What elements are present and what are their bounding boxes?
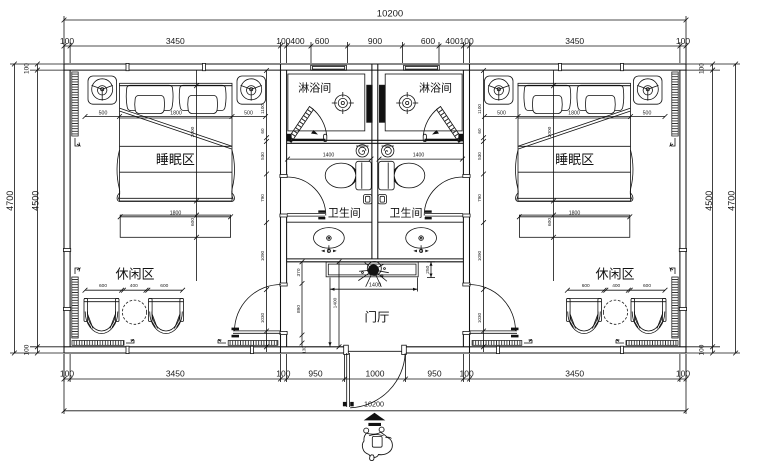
svg-text:100: 100	[460, 36, 474, 46]
svg-text:休闲区: 休闲区	[115, 267, 154, 282]
svg-text:3450: 3450	[166, 36, 185, 46]
svg-text:400: 400	[130, 283, 138, 289]
svg-text:1800: 1800	[569, 211, 581, 217]
svg-text:2000: 2000	[190, 126, 196, 137]
svg-text:100: 100	[24, 63, 31, 74]
svg-text:1030: 1030	[477, 312, 482, 323]
svg-text:100: 100	[676, 36, 690, 46]
svg-text:2000: 2000	[547, 126, 553, 137]
svg-text:950: 950	[308, 369, 322, 379]
svg-text:淋浴间: 淋浴间	[298, 82, 331, 95]
svg-text:790: 790	[477, 194, 482, 202]
svg-text:1090: 1090	[477, 250, 482, 261]
svg-text:500: 500	[99, 111, 108, 117]
svg-text:100: 100	[460, 369, 474, 379]
svg-text:530: 530	[477, 152, 482, 160]
svg-text:600: 600	[315, 36, 329, 46]
svg-text:370: 370	[296, 268, 302, 276]
svg-text:1400: 1400	[369, 283, 381, 289]
svg-text:250: 250	[425, 265, 431, 273]
svg-text:100: 100	[60, 36, 74, 46]
svg-text:1400: 1400	[413, 153, 425, 159]
svg-text:1400: 1400	[323, 153, 335, 159]
svg-text:休闲区: 休闲区	[595, 267, 634, 282]
svg-text:3450: 3450	[565, 36, 584, 46]
svg-text:1090: 1090	[260, 250, 265, 261]
svg-text:1400: 1400	[333, 297, 339, 308]
svg-text:400: 400	[290, 36, 304, 46]
svg-text:1100: 1100	[260, 104, 265, 114]
svg-text:4500: 4500	[31, 191, 41, 211]
svg-text:1000: 1000	[366, 369, 385, 379]
svg-text:4700: 4700	[5, 191, 15, 211]
svg-text:卫生间: 卫生间	[390, 206, 423, 220]
svg-text:600: 600	[547, 218, 553, 226]
svg-text:1800: 1800	[170, 111, 182, 117]
svg-text:4700: 4700	[727, 191, 737, 211]
svg-text:600: 600	[99, 283, 107, 289]
svg-text:790: 790	[260, 194, 265, 202]
svg-text:1030: 1030	[260, 312, 265, 323]
svg-text:100: 100	[24, 344, 31, 355]
svg-text:1800: 1800	[568, 111, 580, 117]
svg-text:100: 100	[276, 369, 290, 379]
svg-text:900: 900	[368, 36, 382, 46]
svg-text:卫生间: 卫生间	[328, 206, 361, 220]
svg-text:950: 950	[427, 369, 441, 379]
svg-text:10200: 10200	[377, 9, 403, 20]
svg-text:3450: 3450	[565, 369, 584, 379]
svg-text:600: 600	[582, 283, 590, 289]
svg-text:100: 100	[676, 369, 690, 379]
svg-text:60: 60	[260, 128, 265, 134]
svg-text:3450: 3450	[166, 369, 185, 379]
svg-text:400: 400	[445, 36, 459, 46]
svg-text:130: 130	[302, 346, 307, 354]
svg-text:600: 600	[643, 283, 651, 289]
svg-text:600: 600	[190, 218, 196, 226]
svg-text:100: 100	[699, 344, 706, 355]
svg-text:600: 600	[160, 283, 168, 289]
svg-text:10200: 10200	[364, 399, 384, 408]
svg-text:睡眠区: 睡眠区	[156, 152, 195, 167]
svg-text:530: 530	[260, 152, 265, 160]
svg-text:1100: 1100	[477, 104, 482, 114]
svg-text:100: 100	[276, 36, 290, 46]
svg-text:4500: 4500	[704, 191, 714, 211]
svg-text:500: 500	[244, 111, 253, 117]
svg-text:门厅: 门厅	[364, 310, 389, 325]
svg-text:500: 500	[497, 111, 506, 117]
svg-text:890: 890	[296, 305, 302, 313]
svg-text:1800: 1800	[170, 211, 182, 217]
svg-text:500: 500	[643, 111, 652, 117]
svg-text:睡眠区: 睡眠区	[555, 152, 594, 167]
svg-text:100: 100	[60, 369, 74, 379]
svg-text:淋浴间: 淋浴间	[419, 82, 452, 95]
svg-text:60: 60	[477, 128, 482, 134]
svg-text:400: 400	[612, 283, 620, 289]
svg-text:600: 600	[421, 36, 435, 46]
